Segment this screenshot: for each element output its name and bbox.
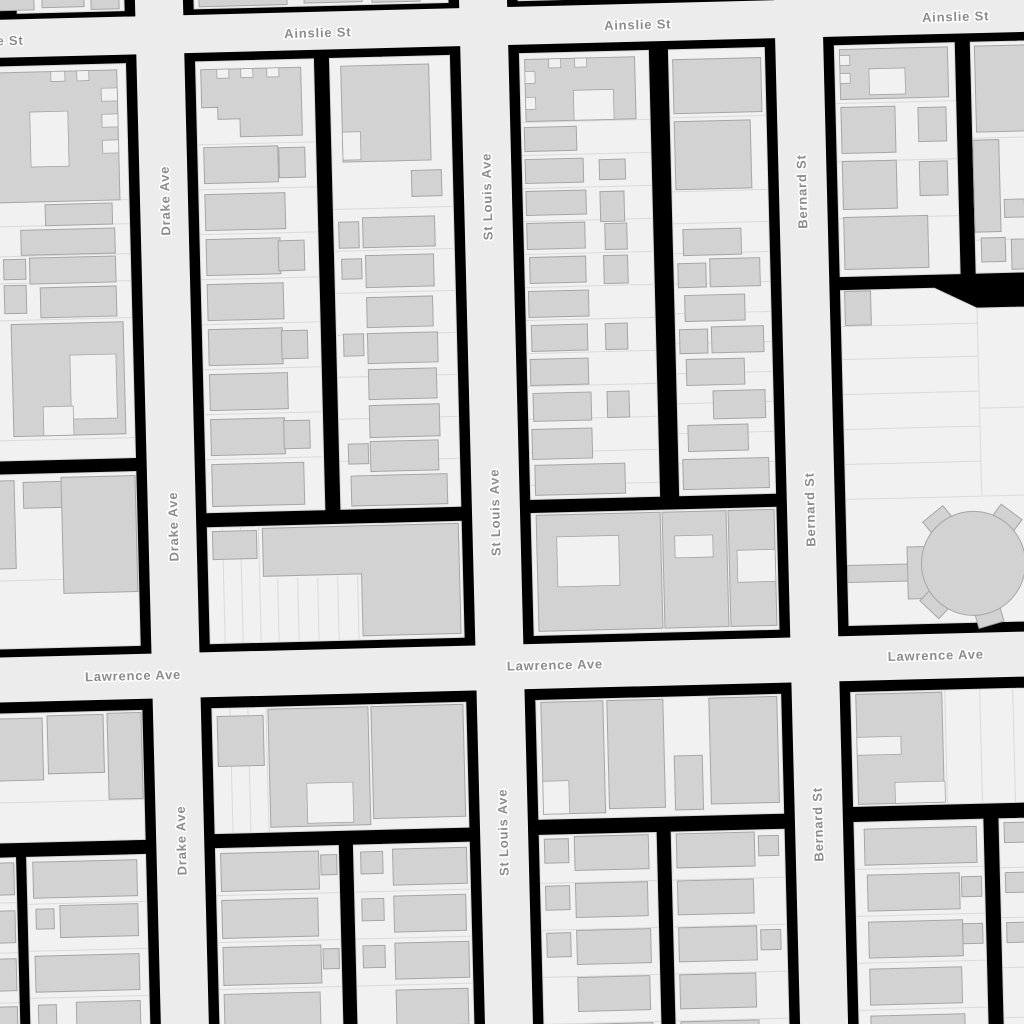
building-footprint (323, 949, 340, 969)
building-footprint (42, 0, 85, 8)
building-footprint (844, 215, 929, 269)
building-footprint (528, 290, 589, 318)
building-courtyard (543, 781, 570, 815)
building-footprint (363, 216, 436, 248)
building-footprint (370, 440, 439, 472)
building-courtyard (857, 736, 901, 755)
map-canvas[interactable]: Ainslie StAinslie StAinslie StAinslie St… (0, 0, 1024, 1024)
building-footprint (29, 256, 116, 284)
building-footprint (363, 945, 386, 968)
building-footprint (683, 228, 742, 255)
building-footprint (4, 285, 27, 314)
street-label-bernard-st: Bernard St (810, 787, 827, 862)
building-footprint (321, 855, 338, 875)
building-footprint (367, 332, 438, 364)
building-footprint (685, 294, 746, 322)
building-footprint (607, 699, 666, 808)
street-label-st-louis-ave: St Louis Ave (494, 788, 511, 876)
building-courtyard (575, 58, 587, 67)
building-footprint (221, 851, 320, 891)
building-footprint (0, 863, 15, 896)
building-courtyard (102, 140, 118, 153)
building-footprint (530, 358, 589, 385)
building-footprint (678, 263, 707, 288)
building-footprint (578, 976, 651, 1012)
building-footprint (870, 967, 963, 1005)
building-footprint (918, 107, 947, 142)
building-footprint (1007, 922, 1024, 943)
building-footprint (1005, 872, 1024, 893)
building-footprint (371, 704, 466, 818)
building-footprint (0, 959, 17, 992)
building-footprint (60, 904, 139, 938)
street-label-st-louis-ave: St Louis Ave (486, 469, 503, 557)
building-courtyard (43, 406, 74, 436)
building-footprint (525, 158, 584, 183)
building-footprint (0, 0, 34, 12)
building-footprint (396, 988, 469, 1024)
building-footprint (544, 839, 569, 864)
building-courtyard (70, 354, 118, 419)
building-footprint (76, 1001, 141, 1024)
building-footprint (688, 424, 749, 452)
building-footprint (607, 391, 630, 418)
street-label-ainslie-st: Ainslie St (604, 16, 672, 33)
street-label-drake-ave: Drake Ave (165, 491, 182, 561)
street-label-drake-ave: Drake Ave (157, 166, 174, 236)
building-courtyard (675, 535, 714, 558)
map-viewport[interactable]: Ainslie StAinslie StAinslie StAinslie St… (0, 0, 1024, 1024)
street-label-st-louis-ave: St Louis Ave (478, 153, 495, 241)
building-footprint (683, 457, 770, 489)
building-footprint (1004, 199, 1024, 218)
building-footprint (394, 894, 467, 932)
street-label-ainslie-st: Ainslie St (0, 33, 24, 50)
building-footprint (0, 481, 16, 570)
building-footprint (0, 718, 44, 782)
building-footprint (361, 851, 384, 874)
building-courtyard (307, 782, 354, 823)
building-footprint (367, 296, 434, 328)
building-footprint (206, 238, 281, 276)
building-courtyard (557, 535, 620, 587)
building-courtyard (30, 111, 69, 167)
building-footprint (21, 228, 116, 255)
building-footprint (662, 511, 729, 629)
building-footprint (711, 326, 764, 353)
building-footprint (392, 847, 467, 885)
building-footprint (204, 146, 279, 184)
building-footprint (222, 898, 319, 938)
building-footprint (279, 147, 306, 178)
street-label-lawrence-ave: Lawrence Ave (85, 667, 181, 684)
building-footprint (679, 329, 708, 354)
building-footprint (577, 929, 652, 965)
building-courtyard (525, 71, 535, 83)
building-courtyard (102, 114, 118, 127)
building-footprint (673, 58, 762, 114)
building-footprint (532, 428, 593, 460)
building-footprint (343, 334, 364, 356)
building-footprint (961, 876, 981, 896)
building-footprint (973, 140, 1001, 233)
building-footprint (0, 1007, 18, 1024)
building-footprint (369, 404, 440, 438)
building-courtyard (840, 73, 850, 83)
building-footprint (38, 1005, 57, 1024)
building-footprint (281, 330, 308, 359)
building-footprint (212, 530, 257, 559)
building-footprint (710, 258, 761, 287)
building-footprint (676, 832, 755, 868)
street-label-lawrence-ave: Lawrence Ave (507, 656, 603, 673)
building-courtyard (267, 68, 279, 77)
building-footprint (531, 324, 588, 351)
building-footprint (686, 358, 745, 385)
building-footprint (36, 909, 55, 929)
building-footprint (339, 222, 360, 248)
building-footprint (107, 712, 143, 799)
building-footprint (1004, 822, 1024, 843)
building-footprint (919, 161, 948, 196)
building-footprint (545, 886, 570, 911)
building-footprint (278, 240, 305, 271)
building-footprint (604, 255, 629, 284)
building-footprint (963, 923, 983, 943)
building-footprint (674, 755, 703, 810)
building-footprint (547, 933, 572, 958)
building-footprint (348, 444, 368, 464)
building-courtyard (101, 88, 117, 101)
building-footprint (209, 373, 288, 411)
building-courtyard (526, 97, 536, 109)
building-footprint (842, 160, 897, 209)
street-label-lawrence-ave: Lawrence Ave (888, 647, 984, 664)
building-footprint (680, 973, 757, 1009)
street-label-ainslie-st: Ainslie St (284, 24, 352, 41)
building-footprint (530, 256, 587, 283)
building-footprint (40, 286, 117, 318)
building-footprint (0, 911, 16, 944)
building-footprint (224, 992, 321, 1024)
building-footprint (679, 926, 758, 962)
building-footprint (1011, 238, 1024, 270)
building-footprint (524, 126, 577, 151)
building-footprint (342, 259, 362, 279)
building-footprint (23, 481, 66, 508)
building-footprint (981, 237, 1006, 262)
building-footprint (867, 873, 960, 911)
building-courtyard (217, 69, 229, 78)
building-footprint (845, 291, 872, 326)
building-footprint (362, 898, 385, 921)
building-footprint (205, 193, 286, 231)
building-footprint (535, 463, 626, 495)
building-footprint (526, 190, 587, 216)
building-courtyard (342, 132, 361, 160)
building-footprint (91, 0, 120, 9)
building-footprint (527, 222, 586, 249)
building-courtyard (77, 71, 89, 81)
building-footprint (605, 223, 628, 250)
street-label-bernard-st: Bernard St (802, 472, 819, 547)
building-footprint (709, 696, 780, 804)
building-footprint (365, 254, 434, 288)
building-footprint (212, 462, 305, 506)
building-footprint (47, 714, 104, 773)
building-courtyard (869, 68, 906, 95)
building-footprint (223, 945, 322, 985)
building-footprint (599, 159, 625, 180)
building-footprint (758, 835, 778, 855)
building-footprint (368, 368, 437, 400)
building-courtyard (51, 71, 65, 81)
building-courtyard (840, 55, 850, 65)
building-footprint (574, 835, 649, 871)
building-courtyard (737, 549, 776, 582)
building-courtyard (549, 59, 561, 68)
street-label-bernard-st: Bernard St (794, 154, 811, 229)
building-footprint (974, 44, 1024, 132)
street-label-drake-ave: Drake Ave (173, 805, 190, 875)
building-footprint (411, 170, 442, 197)
building-footprint (35, 954, 140, 993)
building-footprint (871, 1014, 966, 1024)
building-footprint (217, 715, 264, 766)
building-footprint (61, 476, 138, 594)
building-footprint (351, 474, 448, 506)
building-footprint (211, 418, 286, 456)
building-courtyard (895, 781, 946, 803)
building-footprint (33, 860, 138, 899)
building-footprint (284, 420, 311, 449)
building-footprint (207, 283, 284, 321)
building-footprint (841, 106, 896, 153)
building-footprint (533, 392, 592, 421)
street-label-ainslie-st: Ainslie St (922, 8, 990, 25)
building-footprint (208, 328, 283, 366)
building-footprint (674, 120, 752, 190)
building-courtyard (241, 68, 253, 77)
building-courtyard (573, 89, 614, 120)
building-footprint (677, 879, 754, 915)
building-footprint (864, 826, 977, 865)
building-footprint (45, 203, 113, 226)
building-footprint (575, 882, 648, 918)
building-footprint (605, 323, 628, 350)
building-footprint (395, 941, 470, 979)
building-footprint (600, 191, 625, 222)
building-footprint (761, 929, 781, 949)
building-footprint (3, 259, 25, 280)
building-footprint (868, 920, 963, 958)
building-footprint (713, 390, 766, 419)
